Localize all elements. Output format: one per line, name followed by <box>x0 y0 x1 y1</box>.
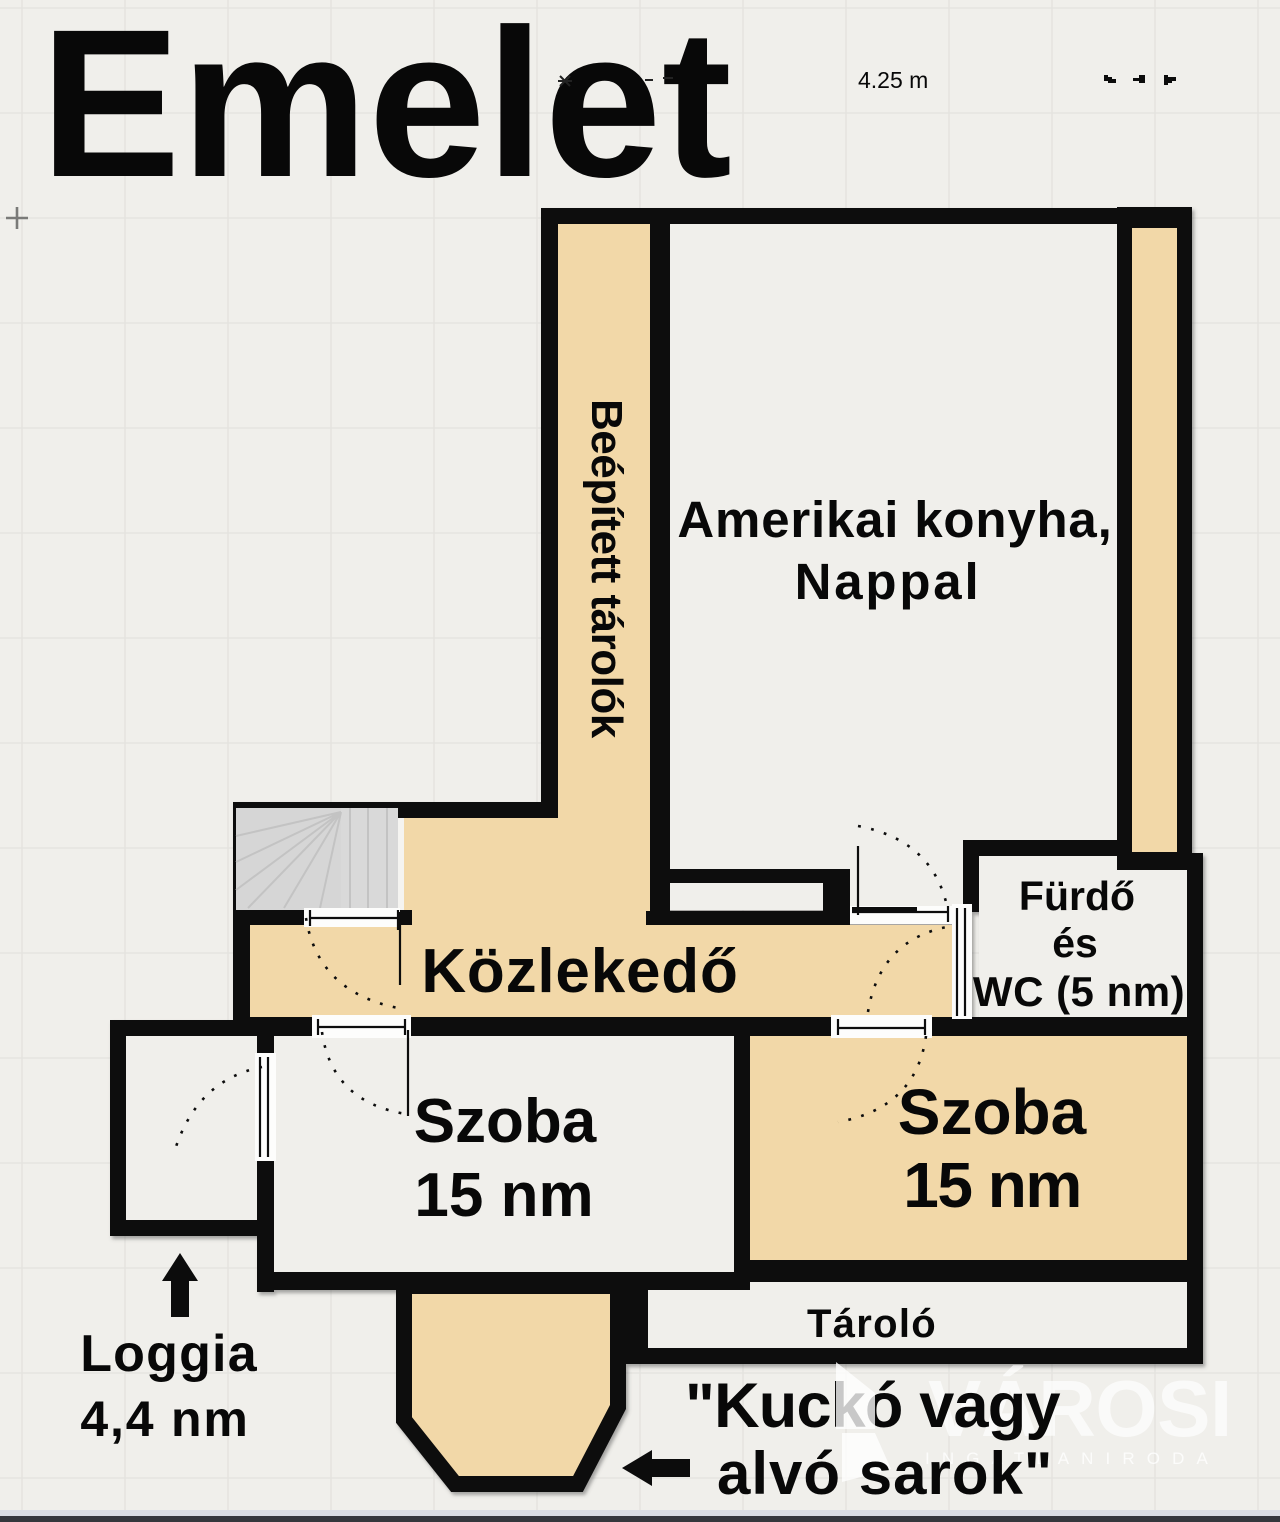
svg-text:alvó sarok": alvó sarok" <box>717 1440 1053 1507</box>
svg-text:4,4 nm: 4,4 nm <box>80 1391 249 1447</box>
svg-text:15 nm: 15 nm <box>414 1161 593 1230</box>
svg-text:Közlekedő: Közlekedő <box>421 937 738 1006</box>
svg-text:Tároló: Tároló <box>807 1302 937 1346</box>
svg-text:és: és <box>1052 920 1098 966</box>
svg-text:Amerikai konyha,: Amerikai konyha, <box>677 491 1112 548</box>
svg-text:Loggia: Loggia <box>80 1325 258 1383</box>
svg-text:Beépített tárolók: Beépített tárolók <box>582 399 631 739</box>
svg-text:WC (5 nm): WC (5 nm) <box>973 968 1185 1015</box>
svg-text:Szoba: Szoba <box>898 1076 1087 1148</box>
svg-text:Fürdő: Fürdő <box>1019 873 1135 919</box>
svg-text:Emelet: Emelet <box>40 0 732 221</box>
svg-text:15 nm: 15 nm <box>903 1149 1080 1221</box>
svg-text:Szoba: Szoba <box>414 1087 597 1156</box>
svg-text:4.25 m: 4.25 m <box>858 67 928 93</box>
svg-text:Nappal: Nappal <box>795 553 982 610</box>
